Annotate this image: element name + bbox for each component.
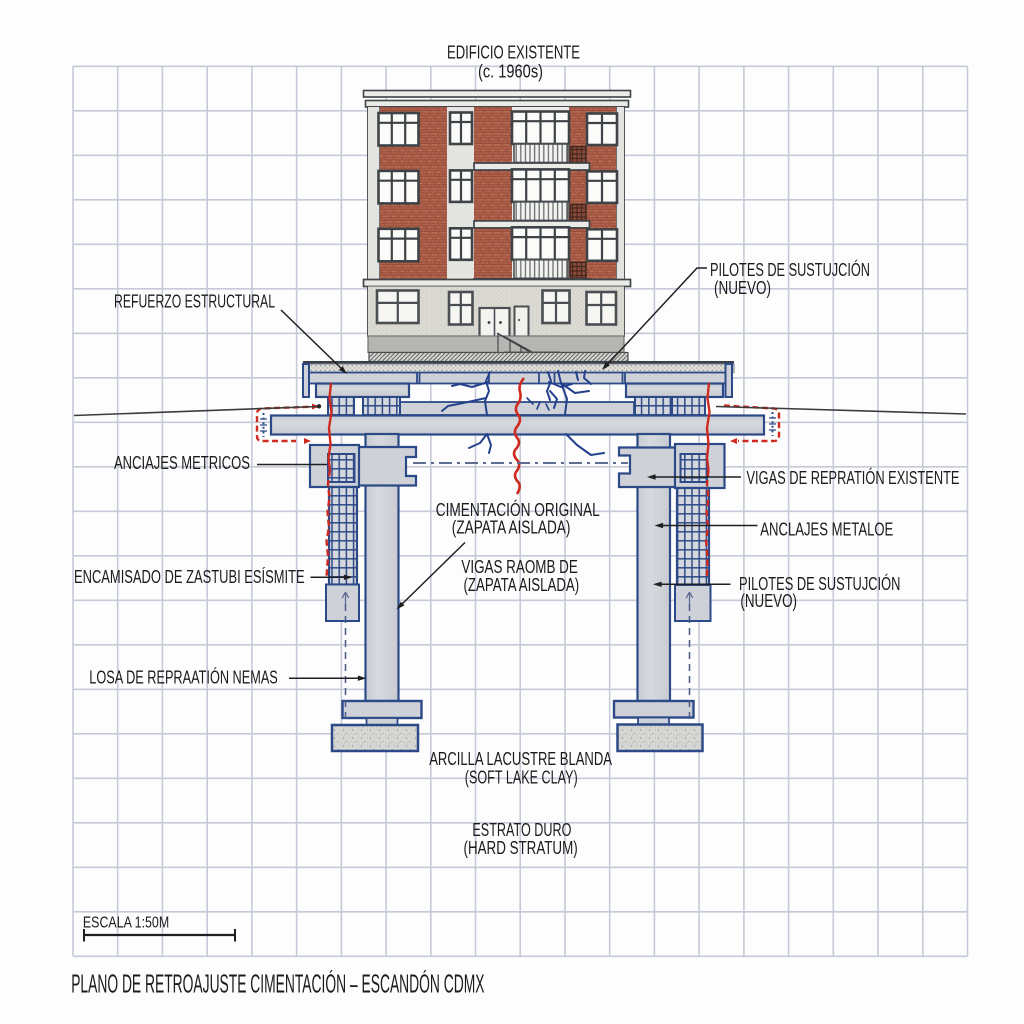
svg-text:(c. 1960s): (c. 1960s): [478, 62, 543, 82]
svg-text:ARCILLA LACUSTRE BLANDA: ARCILLA LACUSTRE BLANDA: [429, 749, 612, 769]
svg-text:ANCIAJES METRICOS: ANCIAJES METRICOS: [114, 453, 250, 473]
svg-text:VIGAS RAOMB DE: VIGAS RAOMB DE: [461, 557, 577, 577]
svg-text:(NUEVO): (NUEVO): [740, 591, 797, 611]
svg-text:(HARD STRATUM): (HARD STRATUM): [464, 838, 578, 858]
svg-text:ESCALA 1:50M: ESCALA 1:50M: [83, 915, 169, 932]
svg-text:(SOFT LAKE CLAY): (SOFT LAKE CLAY): [465, 768, 578, 788]
svg-text:VIGAS DE REPRATIÓN EXISTENTE: VIGAS DE REPRATIÓN EXISTENTE: [747, 467, 960, 488]
svg-text:ANCLAJES METALOE: ANCLAJES METALOE: [760, 520, 893, 540]
svg-text:EDIFICIO EXISTENTE: EDIFICIO EXISTENTE: [447, 43, 580, 63]
svg-text:LOSA DE REPRAATIÓN NEMAS: LOSA DE REPRAATIÓN NEMAS: [89, 666, 277, 687]
svg-text:ENCAMISADO DE ZASTUBI ESÍSMITE: ENCAMISADO DE ZASTUBI ESÍSMITE: [74, 567, 305, 587]
svg-text:(ZAPATA AISLADA): (ZAPATA AISLADA): [464, 575, 580, 595]
svg-text:PLANO DE RETROAJUSTE CIMENTACI: PLANO DE RETROAJUSTE CIMENTACIÓN – ESCAN…: [71, 968, 484, 998]
svg-text:REFUERZO ESTRUCTURAL: REFUERZO ESTRUCTURAL: [114, 292, 275, 312]
svg-text:PILOTES DE SUSTUJCIÓN: PILOTES DE SUSTUJCIÓN: [710, 259, 870, 280]
svg-text:(ZAPATA AISLADA): (ZAPATA AISLADA): [452, 517, 571, 537]
svg-text:(NUEVO): (NUEVO): [714, 278, 771, 298]
